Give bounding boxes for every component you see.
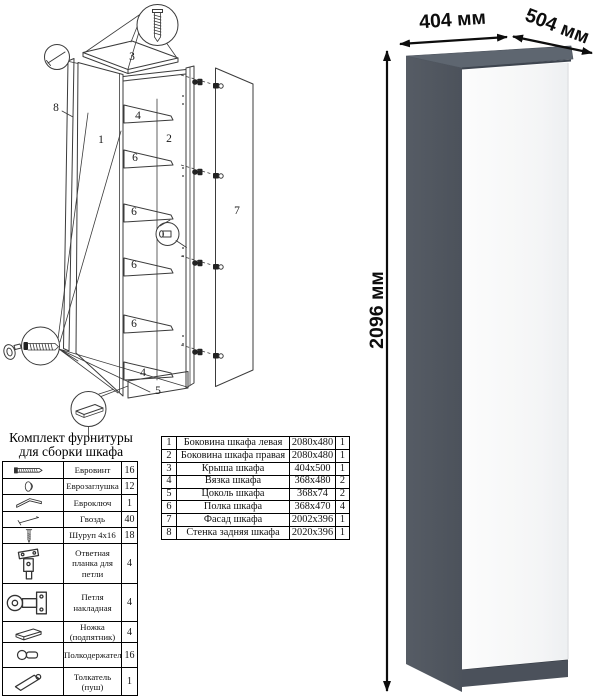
table-row: Петля накладная 4: [3, 584, 138, 622]
screw-icon: [3, 528, 55, 543]
hardware-name: Полкодержатель: [64, 643, 122, 668]
label-2: 2: [166, 133, 172, 145]
part-name: Крыша шкафа: [177, 462, 290, 475]
hinge-icon: [3, 586, 55, 620]
table-row: Ответная планка для петли 4: [3, 544, 138, 584]
part-num: 6: [162, 501, 177, 514]
part-size: 2020x396: [290, 527, 336, 540]
carcass-top-edges: [123, 70, 186, 82]
part-num: 2: [162, 449, 177, 462]
table-row: 6 Полка шкафа 368x470 4: [162, 501, 350, 514]
hardware-name: Ножка (подпятник): [64, 622, 122, 643]
hardware-name: Шуруп 4x16: [64, 528, 122, 544]
facade-door-7: [216, 68, 254, 387]
part-size: 2080x480: [290, 449, 336, 462]
part-name: Стенка задняя шкафа: [177, 527, 290, 540]
detail-circle-confirmat-top: [137, 5, 178, 46]
table-row: Евровинт 16: [3, 462, 138, 479]
part-size: 2002x396: [290, 514, 336, 527]
hardware-name: Гвоздь: [64, 512, 122, 528]
label-4-bottom: 4: [140, 367, 146, 379]
hardware-kit-title: Комплект фурнитуры для сборки шкафа: [2, 431, 140, 458]
cabinet-left-side: [406, 56, 462, 692]
hardware-name: Евроключ: [64, 495, 122, 512]
part-qty: 2: [336, 488, 350, 501]
width-dimension-arrow: [400, 37, 507, 44]
strike-plate-icon: [3, 546, 55, 582]
part-num: 8: [162, 527, 177, 540]
hinge-details: [181, 75, 223, 359]
table-row: Ножка (подпятник) 4: [3, 622, 138, 643]
euro-plug-icon: [3, 479, 55, 494]
euro-key-icon: [3, 495, 55, 511]
table-row: Шуруп 4x16 18: [3, 528, 138, 544]
part-size: 404x500: [290, 462, 336, 475]
part-name: Цоколь шкафа: [177, 488, 290, 501]
label-8: 8: [53, 102, 59, 114]
table-row: Гвоздь 40: [3, 512, 138, 528]
shelf-support-icon: [3, 644, 55, 666]
table-row: Полкодержатель 16: [3, 643, 138, 668]
hardware-name: Еврозаглушка: [64, 479, 122, 495]
detail-circle-shelf-support: [156, 220, 187, 248]
hardware-qty: 1: [122, 668, 138, 696]
part-qty: 1: [336, 527, 350, 540]
label-4-top: 4: [135, 110, 141, 122]
part-qty: 1: [336, 514, 350, 527]
hardware-qty: 4: [122, 584, 138, 622]
part-num: 1: [162, 437, 177, 450]
table-row: 2 Боковина шкафа правая 2080x480 1: [162, 449, 350, 462]
hardware-qty: 12: [122, 479, 138, 495]
back-panel-8: [64, 59, 75, 352]
hardware-name: Петля накладная: [64, 584, 122, 622]
hardware-qty: 4: [122, 622, 138, 643]
detail-circle-nail: [45, 45, 79, 70]
label-3: 3: [129, 51, 135, 63]
depth-dimension-label: 504 мм: [522, 4, 592, 48]
cabinet-render: 404 мм 504 мм 2096 мм: [370, 0, 601, 700]
hardware-qty: 40: [122, 512, 138, 528]
width-dimension-label: 404 мм: [418, 7, 486, 34]
table-row: Толкатель (пуш) 1: [3, 668, 138, 696]
part-size: 368x74: [290, 488, 336, 501]
part-number-labels: 8 1 2 3 4 6 6 6 6 4 5 7: [53, 51, 240, 397]
label-5: 5: [155, 385, 161, 397]
part-name: Полка шкафа: [177, 501, 290, 514]
table-row: 4 Вязка шкафа 368x480 2: [162, 475, 350, 488]
hardware-name: Ответная планка для петли: [64, 544, 122, 584]
part-size: 368x470: [290, 501, 336, 514]
cabinet-door: [462, 63, 568, 671]
part-name: Боковина шкафа левая: [177, 437, 290, 450]
part-num: 5: [162, 488, 177, 501]
hardware-qty: 16: [122, 462, 138, 479]
part-num: 4: [162, 475, 177, 488]
hardware-name: Толкатель (пуш): [64, 668, 122, 696]
part-qty: 4: [336, 501, 350, 514]
drill-hole-dots: [182, 95, 184, 345]
foot-icon: [3, 623, 55, 642]
table-row: 1 Боковина шкафа левая 2080x480 1: [162, 437, 350, 450]
table-row: Евроключ 1: [3, 495, 138, 512]
part-qty: 2: [336, 475, 350, 488]
part-name: Боковина шкафа правая: [177, 449, 290, 462]
label-6: 6: [131, 206, 137, 218]
part-qty: 1: [336, 462, 350, 475]
hardware-qty: 18: [122, 528, 138, 544]
part-name: Вязка шкафа: [177, 475, 290, 488]
part-qty: 1: [336, 437, 350, 450]
part-num: 3: [162, 462, 177, 475]
hardware-name: Евровинт: [64, 462, 122, 479]
parts-list-table: 1 Боковина шкафа левая 2080x480 1 2 Боко…: [161, 436, 350, 540]
label-7: 7: [234, 205, 240, 217]
table-row: 5 Цоколь шкафа 368x74 2: [162, 488, 350, 501]
part-size: 2080x480: [290, 437, 336, 450]
part-qty: 1: [336, 449, 350, 462]
exploded-assembly-diagram: 8 1 2 3 4 6 6 6 6 4 5 7: [0, 0, 370, 445]
hardware-qty: 1: [122, 495, 138, 512]
hardware-kit-block: Комплект фурнитуры для сборки шкафа Евро…: [2, 431, 140, 696]
left-side-panel-1: [76, 63, 123, 397]
height-dimension-label: 2096 мм: [366, 271, 388, 349]
part-size: 368x480: [290, 475, 336, 488]
table-row: 8 Стенка задняя шкафа 2020x396 1: [162, 527, 350, 540]
part-name: Фасад шкафа: [177, 514, 290, 527]
hardware-kit-title-line2: для сборки шкафа: [2, 445, 140, 459]
table-row: Еврозаглушка 12: [3, 479, 138, 495]
label-6: 6: [131, 318, 137, 330]
push-opener-icon: [3, 669, 55, 694]
detail-circle-confirmat-key: [2, 113, 187, 393]
hardware-qty: 4: [122, 544, 138, 584]
nail-icon: [3, 512, 55, 527]
label-6: 6: [131, 259, 137, 271]
assembly-instruction-page: { "diagram": { "labels": { "side_left": …: [0, 0, 601, 700]
table-row: 7 Фасад шкафа 2002x396 1: [162, 514, 350, 527]
hardware-kit-title-line1: Комплект фурнитуры: [2, 431, 140, 445]
table-row: 3 Крыша шкафа 404x500 1: [162, 462, 350, 475]
euro-screw-icon: [3, 462, 55, 478]
hardware-qty: 16: [122, 643, 138, 668]
label-6: 6: [132, 152, 138, 164]
part-num: 7: [162, 514, 177, 527]
label-1: 1: [98, 134, 104, 146]
hardware-kit-table: Евровинт 16 Еврозаглушка 12 Евроключ 1 Г…: [2, 461, 138, 696]
